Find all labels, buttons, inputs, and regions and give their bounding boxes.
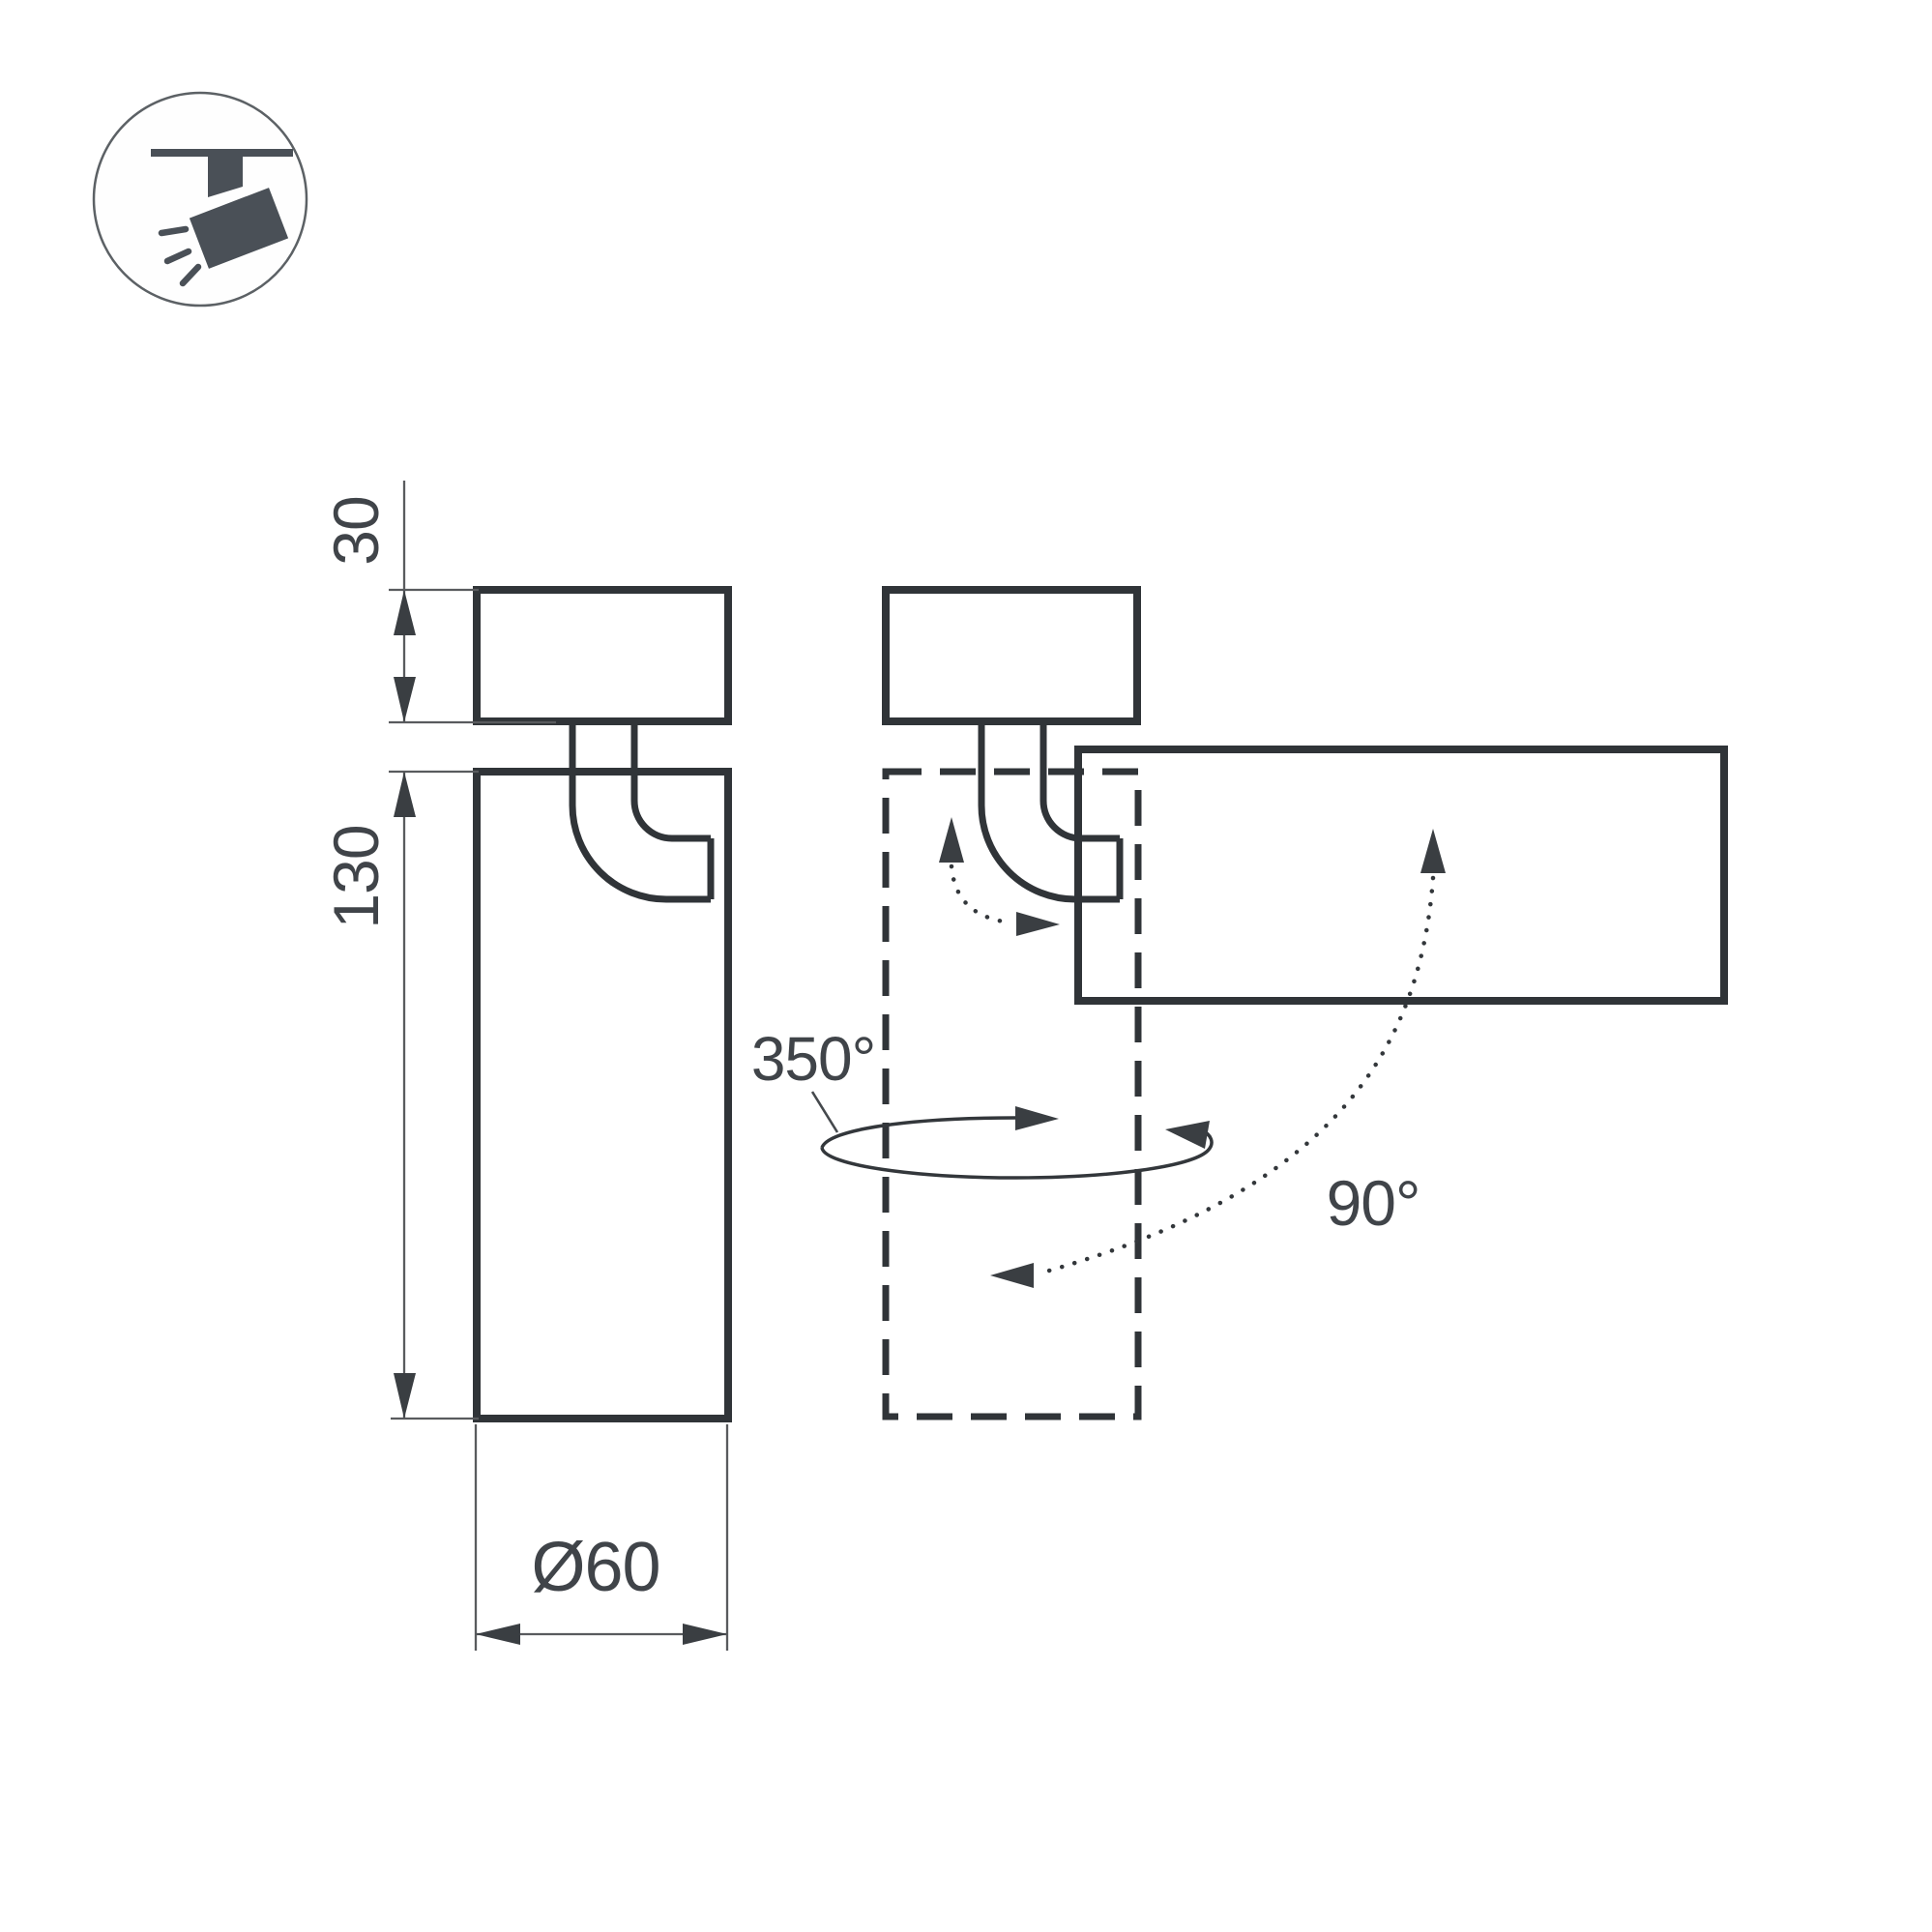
dimension-diameter: Ø60 [476, 1424, 727, 1651]
tilt-rotation-label: 90° [1327, 1167, 1420, 1239]
mount-height-label: 30 [320, 496, 392, 565]
cylinder-body [477, 772, 728, 1419]
dimension-130: 130 [320, 772, 479, 1419]
rotation-ellipse-bottom-arc [822, 1130, 1212, 1178]
label-leader-line [812, 1092, 837, 1132]
tilted-head-horizontal [1078, 749, 1724, 1001]
tilt-arrowhead-left [990, 1263, 1034, 1288]
tilt-arrowhead-up [939, 817, 964, 863]
pan-rotation-annotation: 350° [751, 1024, 1212, 1178]
icon-light-ray [161, 229, 186, 233]
tilt-arrowhead-right [1016, 912, 1060, 936]
rotation-view [886, 590, 1724, 1417]
icon-circle-border [94, 93, 307, 306]
ceiling-track-spotlight-icon [94, 93, 307, 306]
ceiling-mount-block [886, 590, 1137, 721]
body-length-label: 130 [320, 825, 392, 928]
diameter-label: Ø60 [531, 1529, 659, 1606]
rotation-ellipse-top-arc [822, 1118, 1015, 1148]
front-view-vertical [477, 590, 728, 1419]
rotation-arrowhead [1015, 1106, 1059, 1130]
rotation-arrowhead [1165, 1121, 1210, 1149]
tilt-direction-arc-small [951, 866, 1010, 922]
pan-rotation-label: 350° [751, 1024, 875, 1094]
luminaire-dimension-drawing: 30 130 Ø60 350° [0, 0, 1932, 1932]
ceiling-mount-block [477, 590, 728, 721]
technical-drawing-page: 30 130 Ø60 350° [0, 0, 1932, 1932]
